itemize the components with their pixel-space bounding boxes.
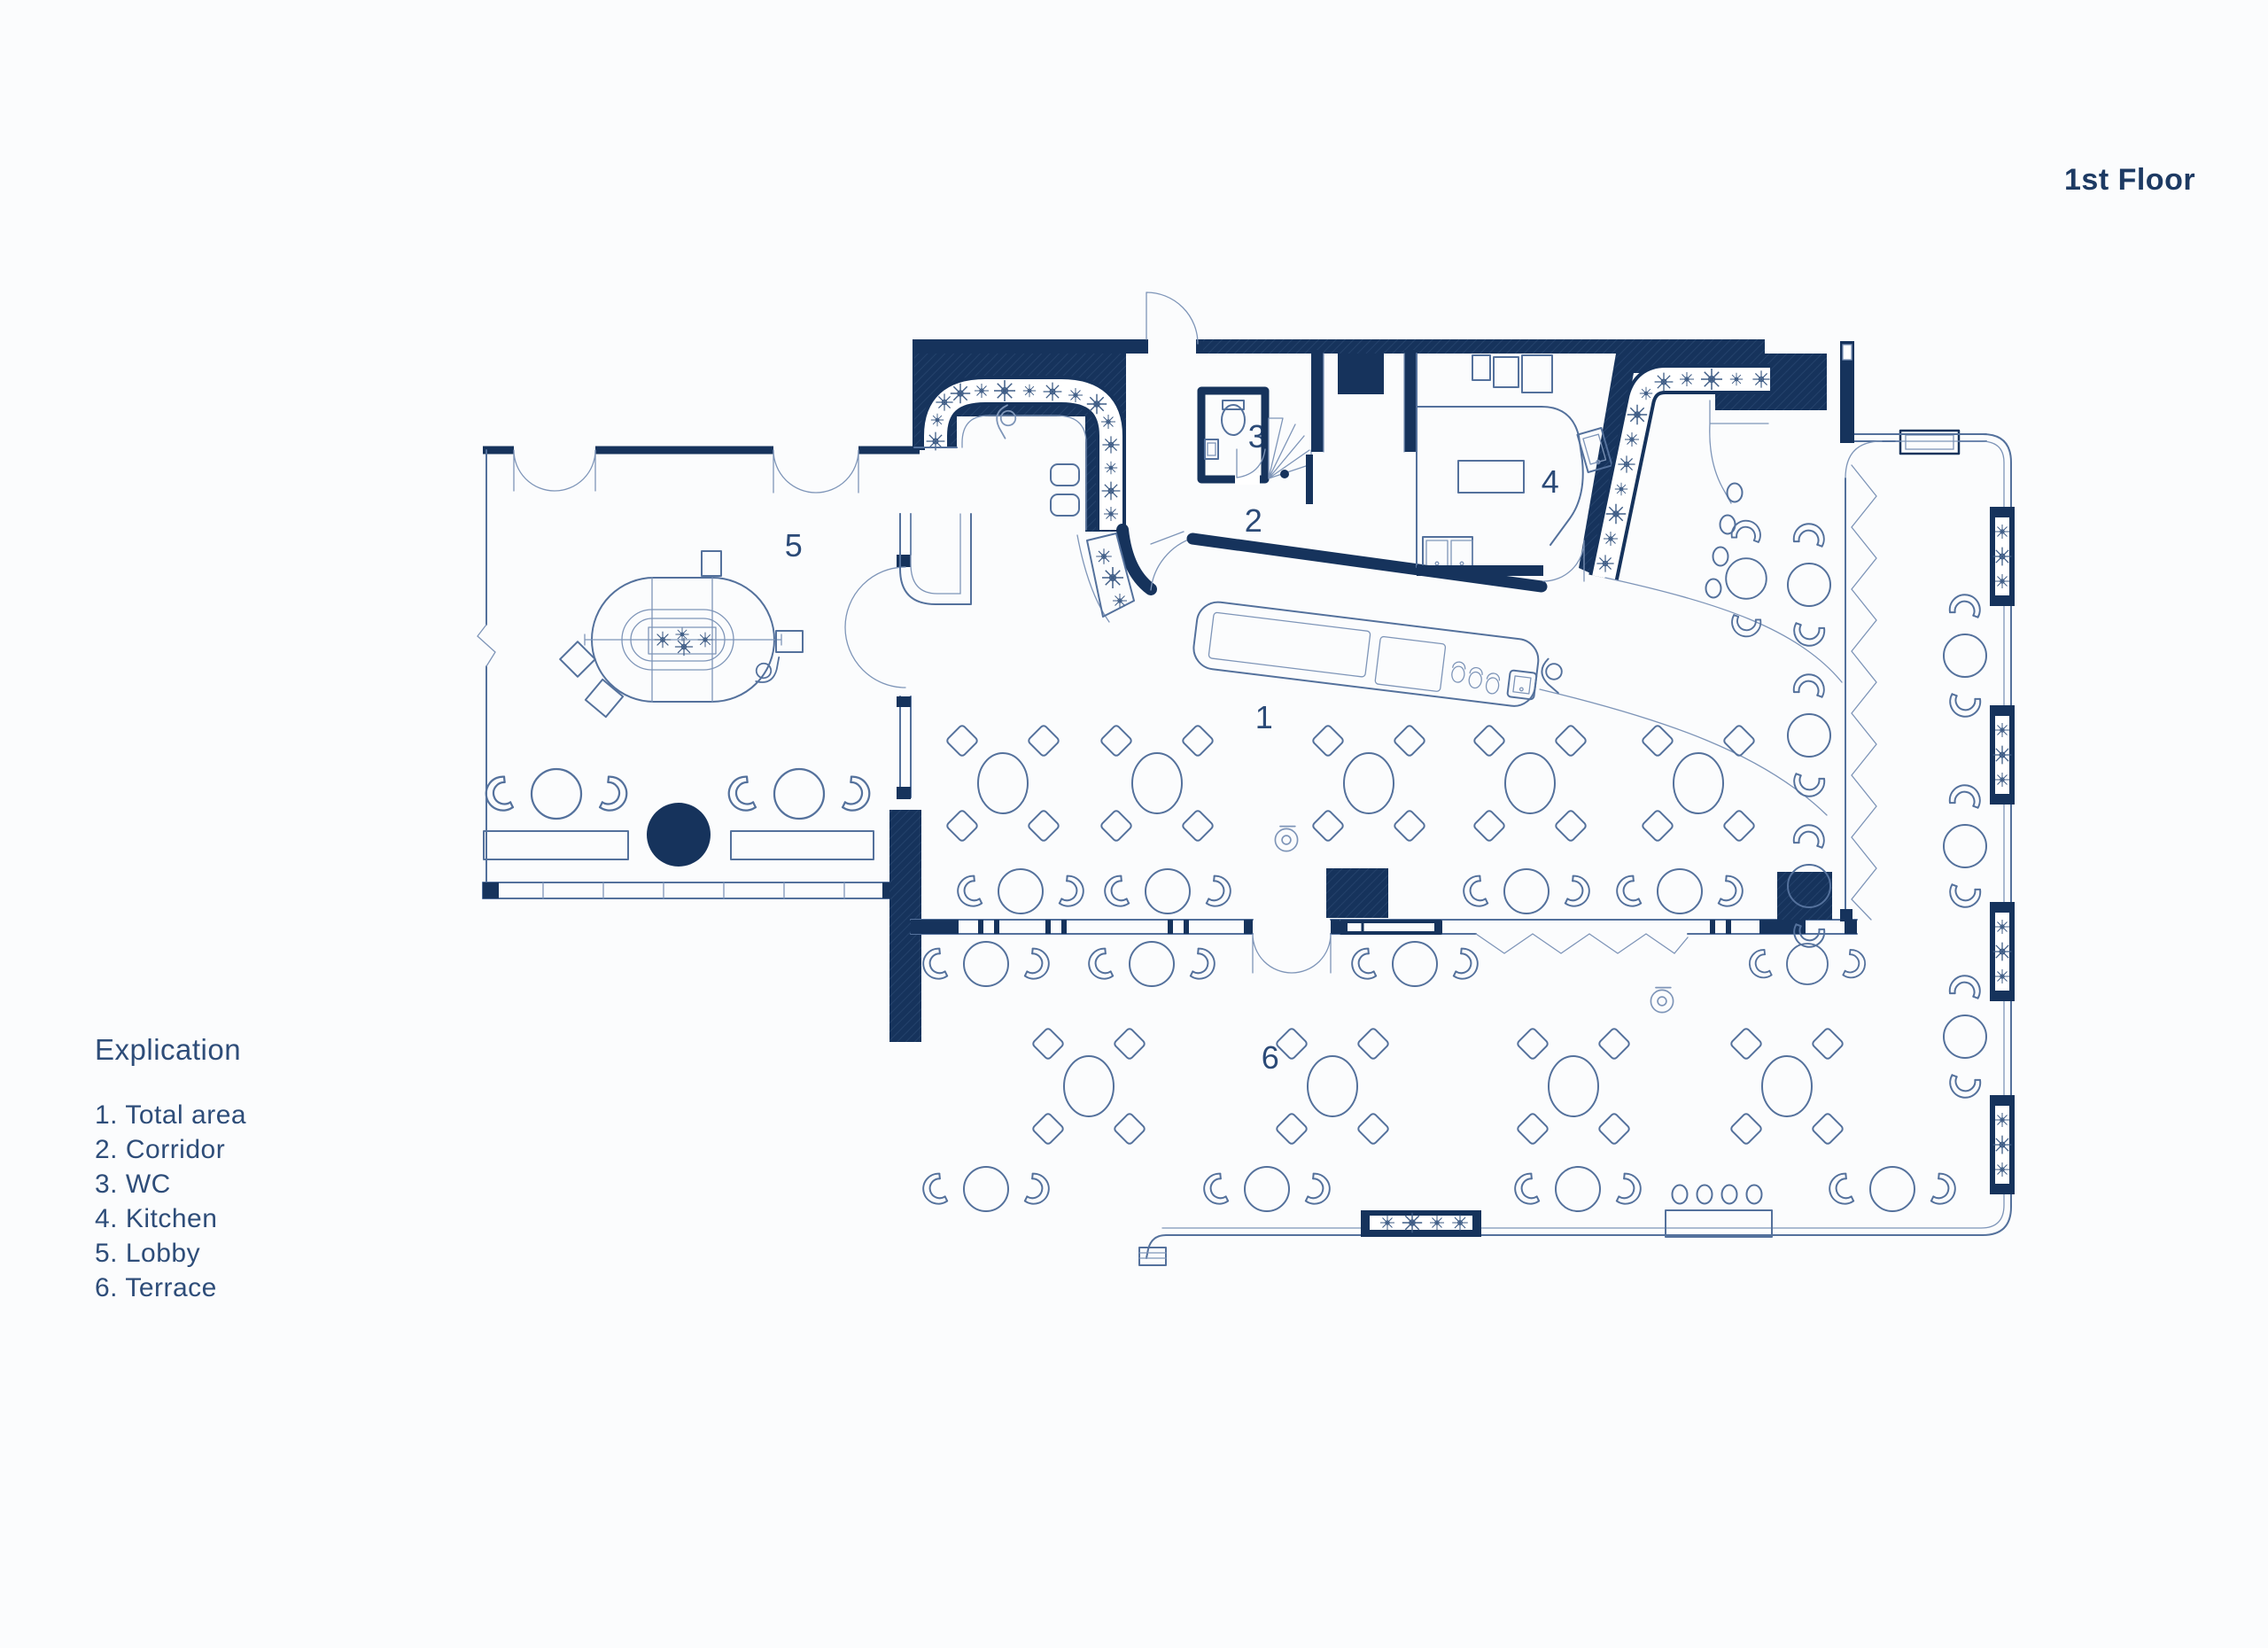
- lobby-room: [478, 450, 971, 1042]
- wheelchair-icon: [1275, 827, 1297, 851]
- room-label-total-area: 1: [1255, 699, 1274, 735]
- person-icon: [750, 655, 787, 687]
- column: [1326, 868, 1388, 918]
- legend-item-wc: 3. WC: [95, 1170, 171, 1199]
- person-icon: [1542, 659, 1561, 693]
- building-walls: [913, 339, 1986, 576]
- room-label-corridor: 2: [1245, 502, 1263, 539]
- legend-item-lobby: 5. Lobby: [95, 1239, 200, 1268]
- room-label-lobby: 5: [785, 527, 804, 564]
- legend-item-kitchen: 4. Kitchen: [95, 1204, 217, 1233]
- legend: Explication 1. Total area 2. Corridor 3.…: [95, 1033, 246, 1302]
- column: [1777, 872, 1832, 920]
- kitchen-island: [1458, 461, 1524, 493]
- hall-east-wall: [1840, 465, 1876, 921]
- floor-plan-canvas: 1st Floor Explication 1. Total area 2. C…: [0, 0, 2268, 1648]
- bar-counter: [1192, 600, 1541, 709]
- bar-stools: [1706, 484, 1743, 598]
- entrance-door: [1146, 292, 1198, 344]
- hall-corridor-wall: [1192, 539, 1542, 587]
- legend-item-corridor: 2. Corridor: [95, 1135, 225, 1164]
- column-marker: [647, 803, 711, 867]
- kitchen-room: [1417, 354, 1842, 815]
- stairs: [1269, 418, 1313, 504]
- legend-title: Explication: [95, 1033, 241, 1066]
- floor-title: 1st Floor: [2064, 163, 2195, 197]
- terrace-boundary: [1139, 434, 2015, 1265]
- terrace-door: [1253, 934, 1331, 973]
- room-label-kitchen: 4: [1542, 463, 1560, 500]
- lobby-furniture: [482, 551, 874, 867]
- hall-window-band: [911, 868, 1857, 973]
- wheelchair-icon: [1651, 988, 1673, 1013]
- elevator-shaft: [1311, 350, 1417, 452]
- legend-item-total-area: 1. Total area: [95, 1100, 246, 1130]
- legend-item-terrace: 6. Terrace: [95, 1273, 217, 1302]
- planting-decoration: [655, 628, 712, 656]
- floor-plan-page: 1st Floor Explication 1. Total area 2. C…: [0, 0, 2268, 1648]
